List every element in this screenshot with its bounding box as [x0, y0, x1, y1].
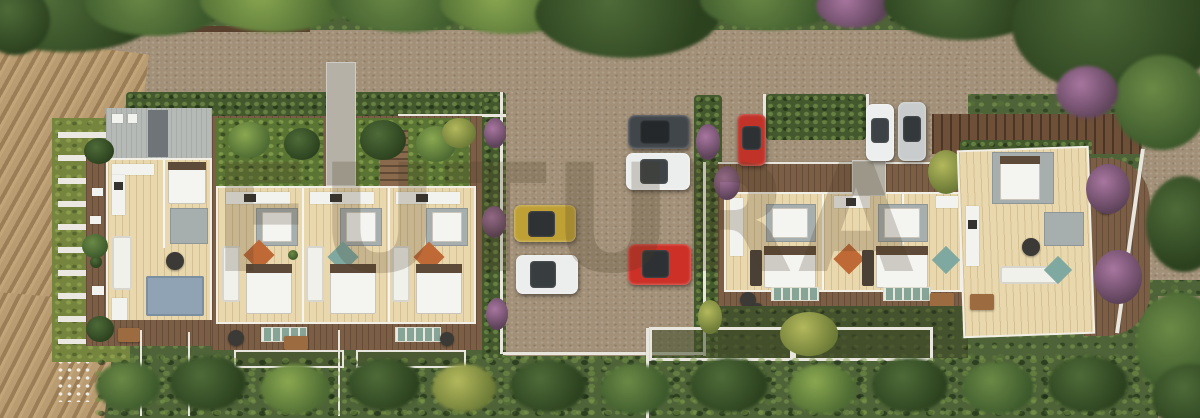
car-red-middle-cabin [642, 250, 669, 278]
lw-dining-table [118, 328, 140, 342]
roof-unit-b [128, 114, 137, 123]
lw-kitchen-counter [112, 164, 154, 175]
wing-bath [1044, 212, 1084, 246]
u3-kitchen [396, 192, 460, 204]
u2-sofa [306, 246, 324, 302]
tree-canopy-10 [1114, 55, 1200, 150]
ru3-kitchen [936, 196, 958, 208]
wing-appliance [968, 220, 977, 229]
lw-south-terrace [96, 320, 212, 346]
bottom-bush-11 [962, 362, 1034, 414]
u1-bed-small [262, 212, 292, 242]
garden-bush-2 [284, 128, 320, 160]
u3-sofa [392, 246, 410, 302]
west-tree-1 [84, 138, 114, 164]
lw-wall [163, 160, 165, 248]
purple-cluster-3 [486, 298, 508, 330]
wing-dining [970, 294, 994, 310]
lw-stove [114, 182, 123, 190]
wing-bed-head [1000, 156, 1040, 164]
lw-sofa [112, 236, 132, 290]
bottom-bush-3 [260, 364, 330, 414]
yellow-cluster-east [698, 300, 722, 334]
ru1-bed-head [764, 246, 816, 255]
bottom-bush-2 [170, 356, 246, 410]
u1-sofa [222, 246, 240, 302]
ru1-seat [750, 250, 762, 286]
aerial-site-plan-render: FUTURA [0, 0, 1200, 418]
bougainvillea-1 [1086, 164, 1130, 214]
right-lot-hedge [766, 94, 866, 140]
bottom-bush-1 [96, 362, 160, 410]
car-yellow-cabin [528, 211, 555, 237]
bottom-bush-6 [510, 360, 586, 412]
roof-unit-a [112, 114, 123, 123]
right-planter-2 [884, 288, 930, 300]
car-white-middle-cabin [530, 261, 556, 288]
right-wall-1 [822, 194, 824, 290]
lw-rug [146, 276, 204, 316]
suv-dark-gray-cabin [640, 120, 670, 144]
lawn-bush-yellow [780, 312, 838, 356]
right-planter-1 [772, 288, 818, 300]
lw-round-table [166, 252, 184, 270]
terrace-round-table-2 [440, 332, 454, 346]
purple-top-right [1056, 66, 1118, 118]
car-red-north-cabin [742, 126, 761, 150]
car-white-north-cabin [640, 159, 668, 184]
u1-bed-head [246, 264, 292, 273]
bottom-bush-12 [1048, 356, 1128, 412]
terrace-round-table [228, 330, 244, 346]
u3-appliance [416, 194, 428, 202]
bottom-bush-9 [788, 364, 856, 414]
ru2-bed-small [884, 208, 920, 238]
lw-kitchen-side [112, 175, 125, 215]
bottom-bush-7 [600, 364, 670, 414]
bottom-bush-4 [348, 358, 420, 410]
terrace-planter-2 [396, 328, 440, 341]
terrace-dining [284, 336, 308, 350]
wing-kitchen [966, 206, 979, 266]
purple-cluster-4 [696, 124, 720, 160]
bottom-bush-10 [872, 358, 948, 412]
u1-appliance [244, 194, 256, 202]
u1-kitchen [226, 192, 290, 204]
purple-bush-right-edge [714, 166, 740, 200]
u2-kitchen [310, 192, 374, 204]
garden-bush-1 [228, 122, 270, 158]
roof-vent-panel [148, 110, 168, 157]
unit-wall-2 [388, 188, 390, 322]
bougainvillea-2 [1094, 250, 1142, 304]
ru2-seat [862, 250, 874, 286]
u2-bed-head [330, 264, 376, 273]
u3-bed-head [416, 264, 462, 273]
bottom-bush-5 [432, 364, 496, 412]
garden-bush-5 [442, 118, 476, 148]
garden-bush-3 [360, 120, 406, 160]
bottom-bush-8 [690, 358, 768, 412]
u2-appliance [330, 194, 342, 202]
purple-cluster-2 [482, 206, 506, 238]
ru2-bed-head [876, 246, 928, 255]
u2-bed-small [346, 212, 376, 242]
u1-plant [288, 250, 298, 260]
ru1-kitchen [730, 198, 743, 256]
car-silver-east-cabin [903, 116, 921, 142]
car-white-east-cabin [871, 118, 889, 143]
west-tree-2 [82, 234, 108, 258]
u3-bed-small [432, 212, 462, 242]
unit-wall-1 [302, 188, 304, 322]
lw-bath [170, 208, 208, 244]
lw-bed-head [168, 162, 206, 170]
right-walkway [852, 160, 886, 196]
wing-round-table [1022, 238, 1040, 256]
west-deck-chair-3 [92, 286, 104, 295]
west-tree-3 [86, 316, 114, 342]
west-deck-chair-1 [92, 188, 103, 196]
ru2-appliance [846, 198, 856, 206]
entry-walkway [326, 62, 356, 186]
purple-cluster-1 [484, 118, 506, 148]
ru1-bed-small [772, 208, 808, 238]
west-deck-chair-2 [90, 216, 101, 224]
